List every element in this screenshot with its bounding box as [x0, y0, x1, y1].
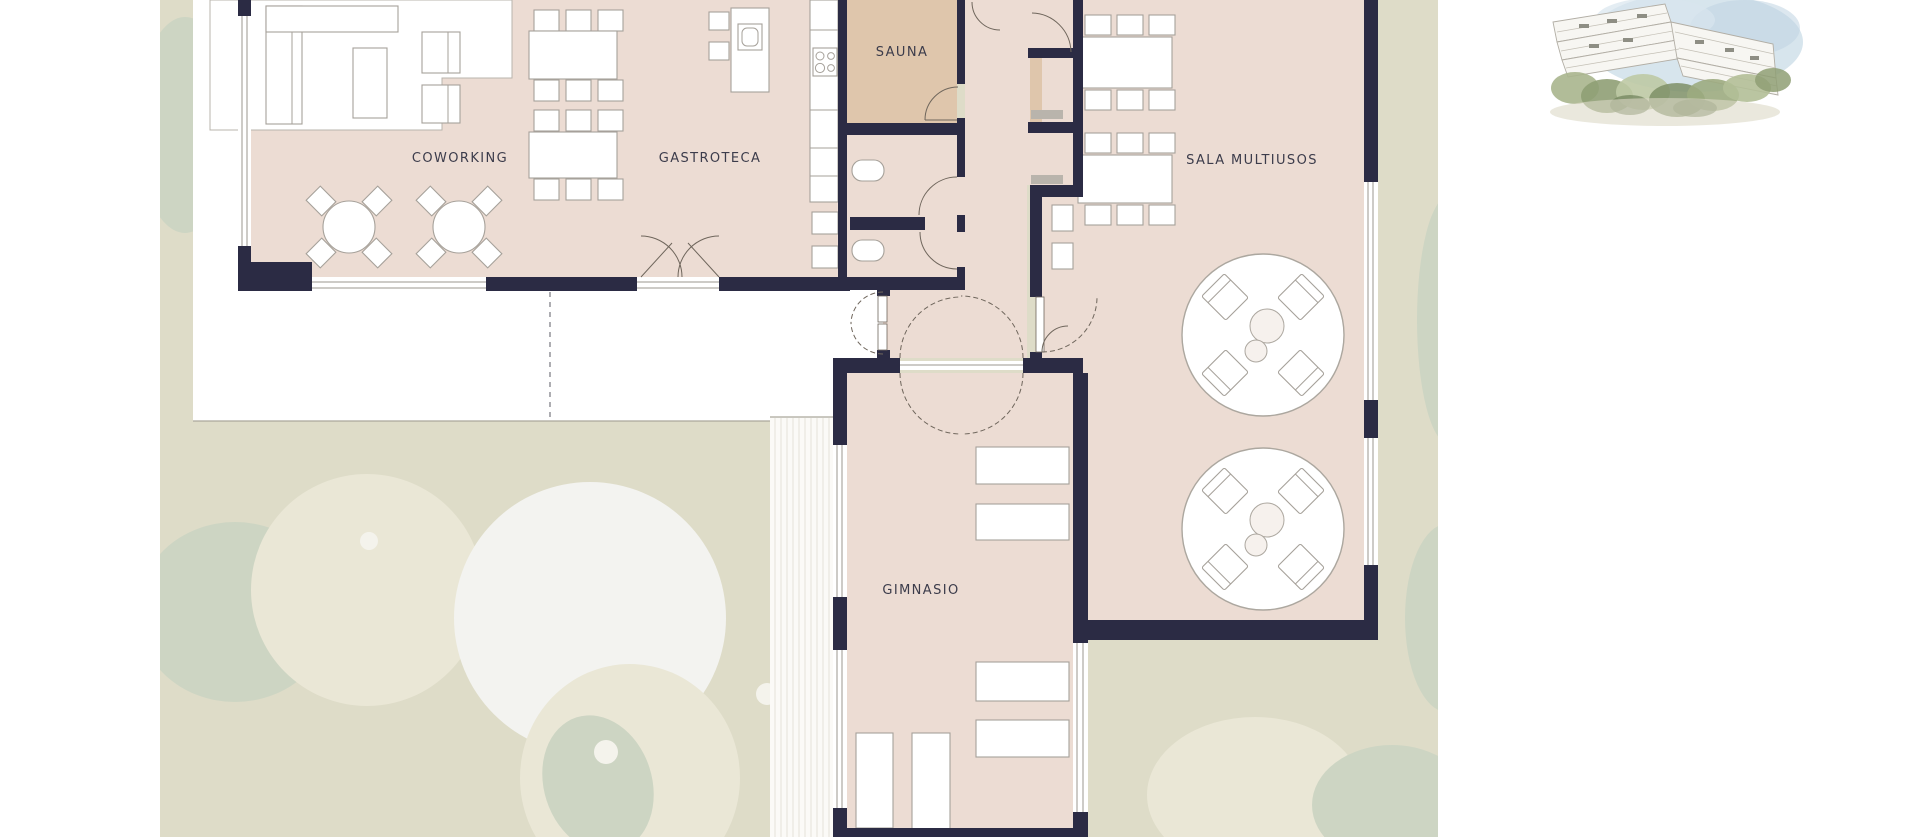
sala-round-lounge: [1182, 448, 1344, 610]
garden-dot: [360, 532, 378, 550]
floor-plan-canvas: COWORKING GASTROTECA SAUNA SALA MULTIUSO…: [0, 0, 1920, 837]
door-threshold: [900, 361, 1023, 370]
label-sala-multiusos: SALA MULTIUSOS: [1186, 153, 1318, 168]
window: [238, 16, 251, 246]
armchair: [422, 32, 460, 73]
room-sauna: [847, 0, 957, 123]
gym-mat: [976, 662, 1069, 701]
closet-door-leaf: [1031, 175, 1063, 184]
window: [1073, 643, 1088, 812]
label-gastroteca: GASTROTECA: [659, 151, 762, 166]
gym-bench: [856, 733, 893, 828]
corridor: [965, 0, 1027, 290]
armchair: [422, 85, 460, 123]
dining-table: [529, 110, 623, 200]
ground-wash: [1550, 98, 1780, 126]
floor-plan-page: COWORKING GASTROTECA SAUNA SALA MULTIUSO…: [0, 0, 1920, 837]
coffee-table: [353, 48, 387, 118]
toilet-icon: [852, 160, 884, 181]
window: [312, 279, 486, 291]
vestibule: [883, 288, 1027, 358]
label-coworking: COWORKING: [412, 151, 508, 166]
gym-mat: [976, 447, 1069, 484]
window: [833, 445, 847, 597]
kitchen-counter: [810, 0, 838, 268]
gym-bench: [912, 733, 950, 830]
garden-dot: [594, 740, 618, 764]
sala-table: [1078, 15, 1175, 110]
sala-bench: [1052, 205, 1073, 231]
closet-door-leaf: [1031, 110, 1063, 119]
toilet-icon: [852, 240, 884, 261]
stool: [709, 12, 729, 30]
dining-table: [529, 10, 623, 101]
garden-shrub-blob: [1417, 196, 1481, 444]
sala-table: [1078, 133, 1175, 225]
window: [1364, 438, 1378, 565]
label-gimnasio: GIMNASIO: [882, 583, 959, 598]
garden-cream-circle: [251, 474, 483, 706]
stool: [709, 42, 729, 60]
sala-bench: [1052, 243, 1073, 269]
gym-mat: [976, 720, 1069, 757]
door-threshold: [637, 279, 719, 291]
window: [1364, 182, 1378, 400]
gym-mat: [976, 504, 1069, 540]
stove-icon: [813, 48, 837, 76]
window: [833, 650, 847, 808]
building-illustration: [1550, 0, 1803, 126]
sala-round-lounge: [1182, 254, 1344, 416]
garden-shrub-blob: [1405, 524, 1489, 712]
label-sauna: SAUNA: [876, 45, 929, 60]
deck-path: [770, 417, 833, 837]
